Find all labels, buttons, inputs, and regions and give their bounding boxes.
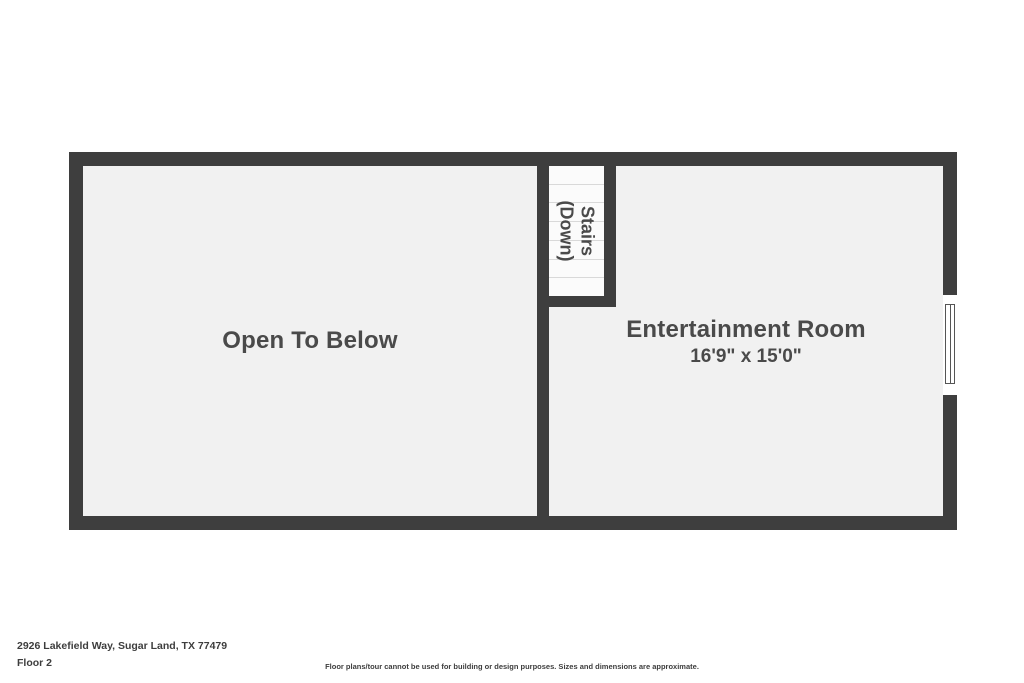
room-open-to-below-label: Open To Below bbox=[222, 327, 398, 355]
stairs-label-line2: (Down) bbox=[556, 201, 577, 262]
footer-disclaimer: Floor plans/tour cannot be used for buil… bbox=[0, 662, 1024, 671]
window-frame-icon bbox=[945, 304, 955, 384]
stairs-label-line1: Stairs bbox=[577, 201, 598, 262]
stair-step bbox=[549, 166, 604, 184]
stairs-area: Stairs (Down) bbox=[549, 166, 604, 296]
floorplan-outline: Open To Below Entertainment Room 16'9" x… bbox=[69, 152, 957, 530]
room-entertainment-understairs bbox=[549, 307, 616, 516]
stairs-label: Stairs (Down) bbox=[556, 201, 597, 262]
room-open-to-below: Open To Below bbox=[83, 166, 537, 516]
window-mullion-icon bbox=[950, 305, 951, 383]
floorplan-canvas: Open To Below Entertainment Room 16'9" x… bbox=[0, 0, 1024, 683]
footer-address: 2926 Lakefield Way, Sugar Land, TX 77479 bbox=[17, 640, 227, 652]
room-entertainment bbox=[616, 166, 943, 516]
stair-step bbox=[549, 277, 604, 296]
window-right-wall bbox=[943, 295, 957, 395]
